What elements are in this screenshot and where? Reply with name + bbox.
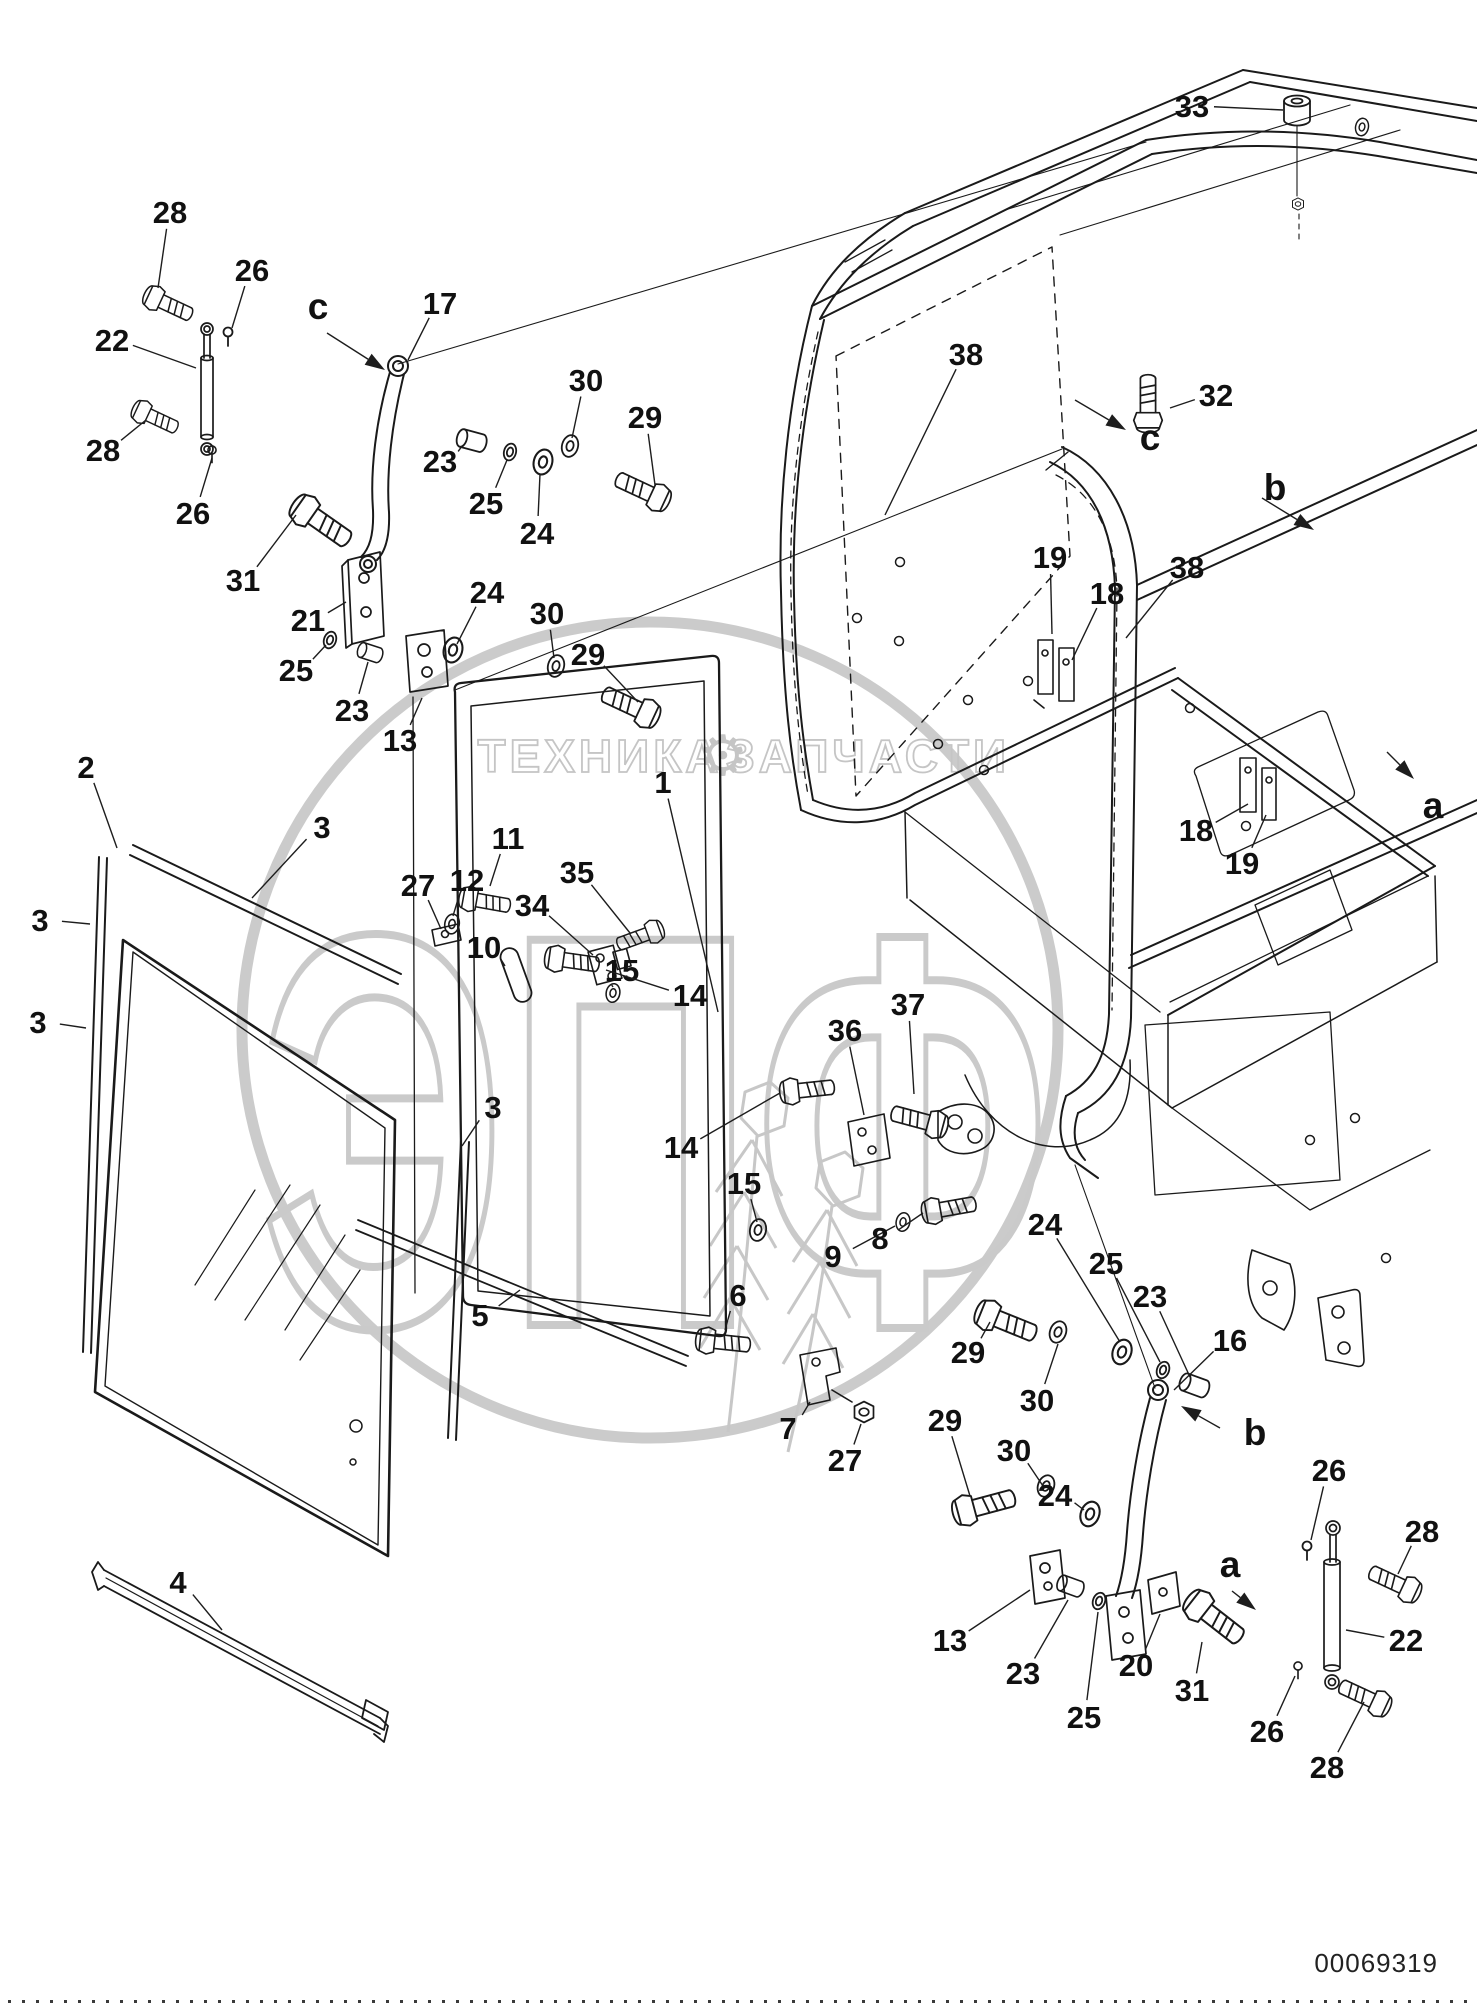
leader-line-23 — [1160, 1311, 1190, 1377]
view-arrow-head-c — [1105, 414, 1126, 430]
callout-25: 25 — [1067, 1700, 1101, 1735]
leader-line-3 — [62, 921, 90, 924]
view-arrow-tail-a — [1387, 752, 1400, 765]
callout-22: 22 — [95, 323, 129, 358]
callout-2: 2 — [77, 750, 94, 785]
link-parts-bottom-right — [1030, 1380, 1340, 1689]
drawing-id-number: 00069319 — [1308, 1948, 1438, 1979]
view-arrow-tail-a — [1232, 1591, 1240, 1598]
seal-strip-left — [83, 857, 107, 1353]
callout-25: 25 — [469, 486, 503, 521]
callout-29: 29 — [928, 1403, 962, 1438]
callout-15: 15 — [727, 1166, 761, 1201]
callout-28: 28 — [153, 195, 187, 230]
leader-line-23 — [359, 662, 368, 694]
callout-4: 4 — [169, 1565, 187, 1600]
leader-line-30 — [572, 397, 581, 438]
leader-line-25 — [313, 645, 326, 659]
leader-line-29 — [648, 434, 655, 485]
leader-line-31 — [257, 515, 296, 567]
callout-38: 38 — [1170, 550, 1204, 585]
callout-23: 23 — [1133, 1279, 1167, 1314]
view-label-a: a — [1220, 1544, 1241, 1585]
watermark-brand-left: ТЕХНИКА — [477, 730, 722, 782]
callout-9: 9 — [824, 1239, 841, 1274]
leader-line-28 — [121, 420, 146, 440]
leader-line-31 — [1196, 1642, 1202, 1673]
nut-33 — [1284, 96, 1310, 241]
callout-18: 18 — [1090, 576, 1124, 611]
view-label-a: a — [1423, 785, 1444, 826]
leader-line-26 — [232, 286, 245, 328]
watermark-brand-right: ЗАПЧАСТИ — [726, 730, 1010, 782]
leader-line-13 — [969, 1590, 1030, 1631]
callout-14: 14 — [673, 978, 708, 1013]
leader-line-18 — [1072, 608, 1097, 660]
leader-line-18 — [1216, 804, 1248, 822]
diagram-page: ЭПФ ТЕХНИКА ⚙ ЗАПЧАСТИ — [0, 0, 1477, 2008]
callout-29: 29 — [571, 637, 605, 672]
callout-38: 38 — [949, 337, 983, 372]
callout-25: 25 — [1089, 1246, 1123, 1281]
callout-26: 26 — [176, 496, 210, 531]
callout-28: 28 — [1310, 1750, 1344, 1785]
leader-line-29 — [952, 1436, 970, 1496]
callout-6: 6 — [729, 1278, 746, 1313]
callout-19: 19 — [1225, 846, 1259, 881]
callout-13: 13 — [933, 1623, 967, 1658]
callout-28: 28 — [86, 433, 120, 468]
view-label-b: b — [1244, 1412, 1267, 1453]
leader-line-2 — [94, 783, 117, 848]
bottom-rail-4 — [92, 1562, 388, 1742]
callout-31: 31 — [226, 563, 260, 598]
leader-line-17 — [408, 318, 429, 360]
view-arrow-head-a — [1236, 1592, 1256, 1610]
callout-23: 23 — [1006, 1656, 1040, 1691]
callout-17: 17 — [423, 286, 457, 321]
leader-line-19 — [1051, 574, 1052, 634]
parts-diagram-drawing: ЭПФ ТЕХНИКА ⚙ ЗАПЧАСТИ — [0, 0, 1477, 2008]
leader-line-24 — [538, 474, 540, 516]
gas-spring-22b — [1324, 1521, 1340, 1689]
callout-37: 37 — [891, 987, 925, 1022]
leader-line-25 — [496, 460, 507, 488]
leader-line-28 — [1338, 1702, 1364, 1752]
callout-28: 28 — [1405, 1514, 1439, 1549]
callout-29: 29 — [951, 1335, 985, 1370]
callout-19: 19 — [1033, 540, 1067, 575]
leader-line-26 — [1277, 1676, 1295, 1716]
leader-line-32 — [1170, 400, 1195, 408]
leader-line-16 — [1174, 1351, 1214, 1390]
callout-13: 13 — [383, 723, 417, 758]
callout-18: 18 — [1179, 813, 1213, 848]
leader-line-3 — [60, 1024, 86, 1028]
callout-14: 14 — [664, 1130, 699, 1165]
callout-12: 12 — [450, 863, 484, 898]
callout-21: 21 — [291, 603, 325, 638]
gas-spring-22 — [201, 323, 213, 455]
callout-34: 34 — [515, 888, 550, 923]
callout-1: 1 — [654, 765, 671, 800]
callout-5: 5 — [471, 1298, 488, 1333]
callout-3: 3 — [484, 1090, 501, 1125]
clamp-20 — [1148, 1572, 1180, 1614]
callout-26: 26 — [1250, 1714, 1284, 1749]
callout-3: 3 — [313, 810, 330, 845]
view-label-b: b — [1264, 467, 1287, 508]
callout-24: 24 — [1028, 1207, 1063, 1242]
callout-30: 30 — [997, 1433, 1031, 1468]
callout-33: 33 — [1175, 89, 1209, 124]
callout-26: 26 — [235, 253, 269, 288]
callout-30: 30 — [569, 363, 603, 398]
view-arrow-head-b — [1181, 1406, 1202, 1421]
leader-line-33 — [1214, 107, 1283, 110]
callout-23: 23 — [423, 444, 457, 479]
leader-line-28 — [1398, 1546, 1411, 1574]
callout-27: 27 — [828, 1443, 862, 1478]
callout-27: 27 — [401, 868, 435, 903]
callout-20: 20 — [1119, 1648, 1153, 1683]
callout-15: 15 — [605, 953, 639, 988]
callout-29: 29 — [628, 400, 662, 435]
watermark-logo-text: ЭПФ — [260, 818, 1050, 1444]
view-arrow-head-c — [365, 354, 385, 370]
callout-24: 24 — [1038, 1478, 1073, 1513]
callout-8: 8 — [871, 1221, 888, 1256]
leader-line-23 — [1035, 1600, 1068, 1659]
view-arrow-tail-b — [1198, 1416, 1220, 1428]
leader-line-26 — [200, 458, 212, 497]
callout-36: 36 — [828, 1013, 862, 1048]
callout-10: 10 — [467, 930, 501, 965]
leader-line-38 — [1126, 580, 1173, 638]
leader-line-22 — [133, 345, 196, 368]
callout-7: 7 — [779, 1411, 796, 1446]
callout-24: 24 — [520, 516, 555, 551]
view-label-c: c — [1140, 417, 1161, 458]
callout-26: 26 — [1312, 1453, 1346, 1488]
callout-35: 35 — [560, 855, 594, 890]
callout-23: 23 — [335, 693, 369, 728]
callout-3: 3 — [29, 1005, 46, 1040]
callout-32: 32 — [1199, 378, 1233, 413]
view-label-c: c — [308, 286, 329, 327]
callout-30: 30 — [530, 596, 564, 631]
leader-line-22 — [1346, 1630, 1384, 1637]
view-arrow-tail-c — [1075, 400, 1109, 420]
leader-line-19 — [1252, 815, 1266, 848]
callout-22: 22 — [1389, 1623, 1423, 1658]
leader-line-38 — [885, 369, 956, 515]
callout-31: 31 — [1175, 1673, 1209, 1708]
page-edge-dots — [8, 2000, 1469, 2003]
leader-line-25 — [1087, 1612, 1098, 1700]
view-arrow-tail-c — [327, 333, 368, 359]
callout-30: 30 — [1020, 1383, 1054, 1418]
leader-line-26 — [1311, 1486, 1324, 1540]
bracket-21 — [342, 552, 384, 648]
leader-line-20 — [1145, 1614, 1160, 1650]
callout-11: 11 — [492, 821, 525, 856]
callout-25: 25 — [279, 653, 313, 688]
leader-line-28 — [158, 229, 167, 288]
callout-24: 24 — [470, 575, 505, 610]
callout-16: 16 — [1213, 1323, 1247, 1358]
leader-line-29 — [604, 666, 638, 702]
callout-3: 3 — [31, 903, 48, 938]
leader-line-24 — [457, 607, 476, 644]
